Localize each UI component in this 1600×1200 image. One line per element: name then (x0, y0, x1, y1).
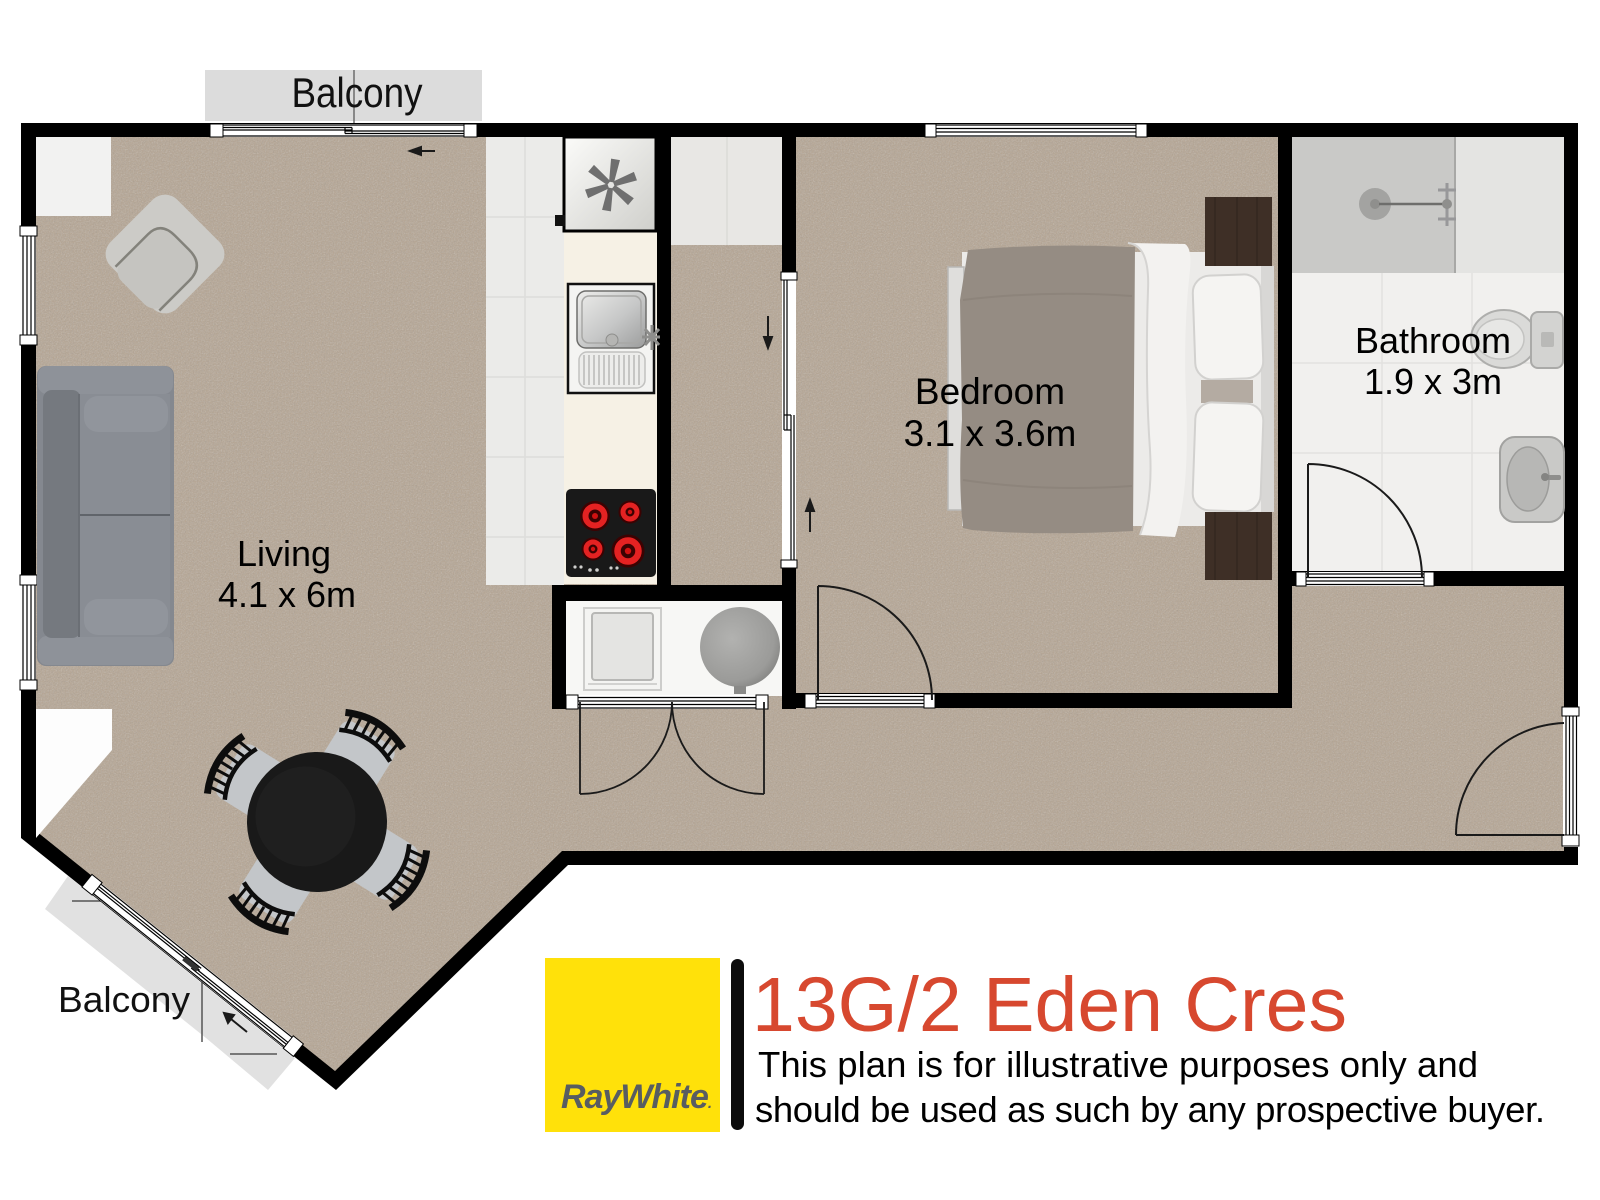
svg-text:1.9 x 3m: 1.9 x 3m (1364, 361, 1502, 402)
svg-text:This plan is for illustrative: This plan is for illustrative purposes o… (758, 1044, 1478, 1085)
svg-text:Bathroom: Bathroom (1355, 320, 1511, 361)
svg-text:13G/2 Eden Cres: 13G/2 Eden Cres (752, 962, 1347, 1048)
svg-text:RayWhite.: RayWhite. (561, 1078, 711, 1116)
svg-text:Balcony: Balcony (292, 69, 423, 116)
svg-text:Living: Living (237, 533, 331, 574)
svg-text:Balcony: Balcony (58, 979, 190, 1020)
svg-text:should be used as such by any: should be used as such by any prospectiv… (755, 1089, 1545, 1130)
svg-text:3.1 x 3.6m: 3.1 x 3.6m (904, 413, 1077, 454)
svg-text:4.1 x 6m: 4.1 x 6m (218, 574, 356, 615)
svg-text:Bedroom: Bedroom (915, 371, 1065, 412)
